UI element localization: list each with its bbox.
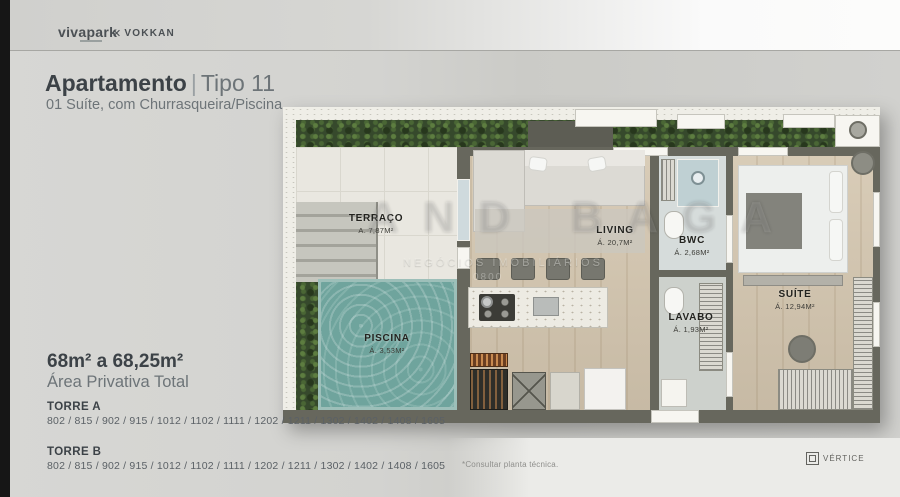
watermark-text: AND BAGA	[283, 193, 880, 243]
wall-bath-right-3	[726, 397, 733, 410]
bed-bench	[743, 275, 843, 286]
vivapark-logo-subtext	[80, 40, 102, 42]
wardrobe-right	[853, 277, 873, 410]
fridge	[584, 368, 626, 410]
churrasqueira-grill	[470, 369, 508, 410]
vertice-logo: VÉRTICE	[806, 452, 865, 465]
wall-bath-right-2	[726, 263, 733, 352]
shaft-panel	[512, 372, 546, 410]
title-separator: |	[187, 70, 201, 96]
skewer-rack	[470, 353, 508, 367]
title-subtitle: 01 Suíte, com Churrasqueira/Piscina	[46, 97, 282, 113]
vokkan-logo-text: VOKKAN	[124, 28, 175, 39]
room-area-piscina: Á. 3,53M²	[369, 346, 404, 355]
pan	[481, 296, 493, 308]
showerhead	[691, 171, 705, 185]
lavabo-toilet	[664, 287, 684, 315]
entry-door	[651, 410, 699, 423]
vokkan-logo: ✕ VOKKAN	[112, 27, 175, 40]
floor-plan-image: TERRAÇO A. 7,87M² PISCINA Á. 3,53M² LIVI…	[283, 107, 880, 423]
room-area-lavabo: Á. 1,93M²	[673, 325, 708, 334]
wall-bath-divider	[659, 270, 726, 277]
watermark-subtext: NEGÓCIOS IMOBILIÁRIOS	[403, 257, 603, 269]
room-area-bwc: Á. 2,68M²	[674, 248, 709, 257]
area-range: 68m² a 68,25m²	[47, 351, 183, 373]
kitchen-counter	[550, 372, 580, 410]
kitchen-sink	[533, 297, 559, 316]
vertice-logo-text: VÉRTICE	[823, 454, 865, 463]
tower-a-units: 802 / 815 / 902 / 915 / 1012 / 1102 / 11…	[47, 415, 445, 427]
page-title: Apartamento|Tipo 11	[45, 70, 275, 97]
terrace-frame-left	[283, 120, 296, 410]
area-range-label: Área Privativa Total	[47, 373, 189, 392]
lavabo-vanity	[661, 379, 687, 407]
sofa-pillow	[528, 156, 548, 172]
plant-strip-pool	[296, 282, 318, 410]
room-label-suite: SUÍTE	[779, 289, 812, 300]
lavabo-door	[726, 352, 733, 397]
brochure-page: vivapark ✕ VOKKAN Apartamento|Tipo 11 01…	[0, 0, 900, 497]
wall-right	[873, 147, 880, 410]
window-planter-bwc	[677, 114, 725, 129]
watermark-phone: 0800	[473, 272, 503, 283]
title-main: Apartamento	[45, 70, 187, 96]
vivapark-logo: vivapark	[58, 24, 117, 40]
closet-bottom	[778, 369, 853, 410]
tower-b-label: TORRE B	[47, 446, 101, 458]
title-variant: Tipo 11	[201, 70, 275, 96]
window-planter-center	[575, 109, 657, 127]
top-bar: vivapark ✕ VOKKAN	[10, 0, 900, 51]
window-planter-suite	[783, 114, 835, 128]
tower-b-units: 802 / 815 / 902 / 915 / 1012 / 1102 / 11…	[47, 460, 445, 472]
footnote: *Consultar planta técnica.	[462, 460, 558, 469]
pool	[318, 279, 457, 410]
vokkan-x-icon: ✕	[112, 27, 122, 40]
room-label-lavabo: LAVABO	[669, 312, 714, 323]
room-label-piscina: PISCINA	[364, 333, 409, 344]
window-top-2	[738, 147, 788, 156]
ottoman	[788, 335, 816, 363]
side-table	[851, 151, 875, 175]
window-right-2	[873, 302, 880, 347]
corner-item	[849, 121, 867, 139]
left-edge-strip	[0, 0, 10, 497]
vertice-icon	[806, 452, 819, 465]
room-area-suite: Á. 12,94M²	[775, 302, 815, 311]
tower-a-label: TORRE A	[47, 401, 101, 413]
